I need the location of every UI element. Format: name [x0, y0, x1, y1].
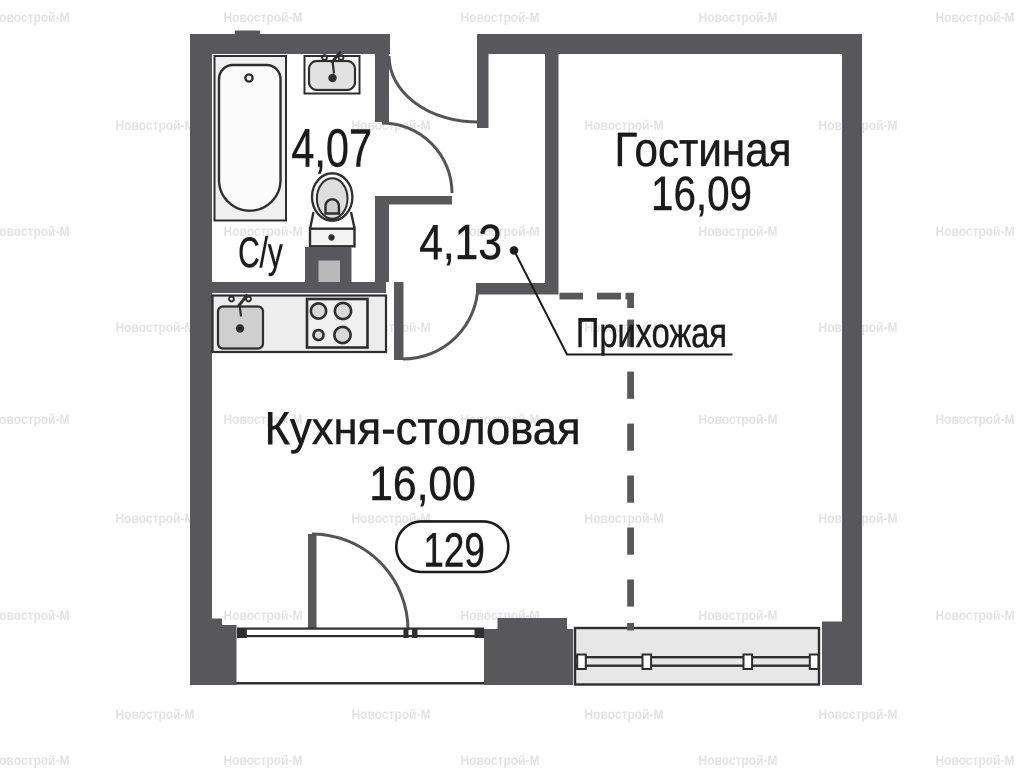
svg-text:Новострой-М: Новострой-М — [699, 608, 778, 623]
svg-text:Новострой-М: Новострой-М — [585, 511, 664, 526]
svg-text:Новострой-М: Новострой-М — [461, 753, 540, 768]
svg-text:Новострой-М: Новострой-М — [224, 753, 303, 768]
svg-text:16,00: 16,00 — [369, 458, 476, 511]
svg-text:Новострой-М: Новострой-М — [585, 707, 664, 722]
svg-text:Новострой-М: Новострой-М — [116, 707, 195, 722]
svg-text:Новострой-М: Новострой-М — [699, 753, 778, 768]
svg-text:Новострой-М: Новострой-М — [116, 511, 195, 526]
svg-text:Новострой-М: Новострой-М — [819, 707, 898, 722]
svg-text:Новострой-М: Новострой-М — [699, 224, 778, 239]
svg-text:Новострой-М: Новострой-М — [0, 753, 70, 768]
svg-text:Новострой-М: Новострой-М — [224, 608, 303, 623]
svg-text:Новострой-М: Новострой-М — [936, 412, 1015, 427]
svg-text:Новострой-М: Новострой-М — [936, 10, 1015, 25]
svg-text:Новострой-М: Новострой-М — [699, 10, 778, 25]
svg-text:16,09: 16,09 — [651, 168, 752, 221]
svg-text:Прихожая: Прихожая — [576, 309, 727, 356]
svg-text:Новострой-М: Новострой-М — [936, 224, 1015, 239]
svg-text:4,13: 4,13 — [419, 216, 502, 270]
svg-text:Новострой-М: Новострой-М — [936, 608, 1015, 623]
svg-text:Новострой-М: Новострой-М — [0, 608, 70, 623]
svg-text:Новострой-М: Новострой-М — [0, 412, 70, 427]
svg-text:Новострой-М: Новострой-М — [352, 707, 431, 722]
svg-text:Новострой-М: Новострой-М — [699, 412, 778, 427]
svg-text:Новострой-М: Новострой-М — [461, 10, 540, 25]
svg-text:Новострой-М: Новострой-М — [936, 753, 1015, 768]
svg-text:Новострой-М: Новострой-М — [116, 118, 195, 133]
svg-text:Новострой-М: Новострой-М — [116, 320, 195, 335]
svg-text:Новострой-М: Новострой-М — [0, 10, 70, 25]
svg-text:Новострой-М: Новострой-М — [0, 224, 70, 239]
svg-text:Новострой-М: Новострой-М — [224, 10, 303, 25]
svg-text:Кухня-столовая: Кухня-столовая — [265, 402, 581, 454]
svg-text:4,07: 4,07 — [291, 118, 372, 178]
svg-text:129: 129 — [423, 525, 484, 578]
svg-text:С/у: С/у — [238, 229, 283, 277]
